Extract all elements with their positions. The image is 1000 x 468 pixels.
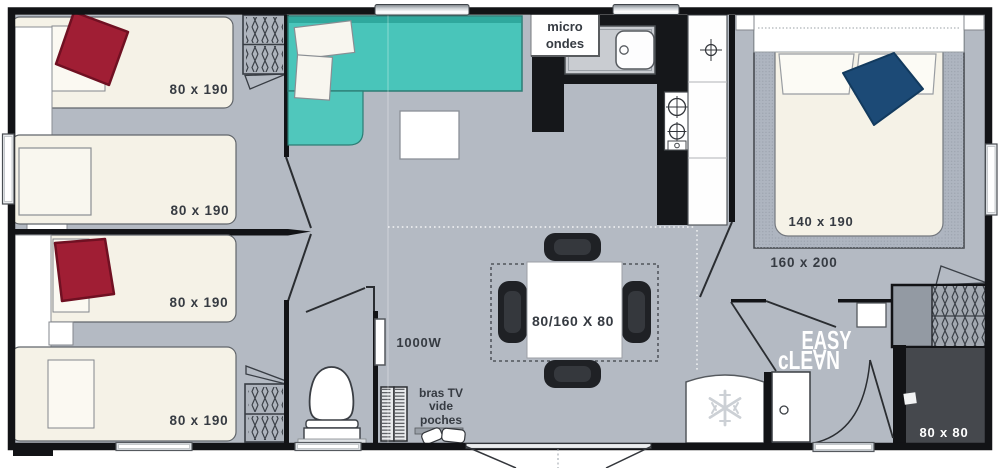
svg-text:ondes: ondes xyxy=(546,36,584,51)
svg-text:micro: micro xyxy=(547,19,582,34)
svg-text:80 x 80: 80 x 80 xyxy=(920,425,969,440)
svg-text:cLE∀N: cLE∀N xyxy=(778,345,840,375)
svg-text:80 x 190: 80 x 190 xyxy=(171,203,230,218)
svg-text:140 x 190: 140 x 190 xyxy=(788,214,853,229)
svg-text:80 x 190: 80 x 190 xyxy=(170,82,229,97)
svg-text:80/160 X 80: 80/160 X 80 xyxy=(532,313,614,329)
svg-text:bras TV: bras TV xyxy=(419,386,463,400)
svg-text:vide: vide xyxy=(429,399,453,413)
svg-text:1000W: 1000W xyxy=(396,335,441,350)
svg-text:poches: poches xyxy=(420,413,462,427)
svg-text:80 x 190: 80 x 190 xyxy=(170,413,229,428)
svg-text:80 x 190: 80 x 190 xyxy=(170,295,229,310)
svg-text:160 x 200: 160 x 200 xyxy=(770,255,837,270)
